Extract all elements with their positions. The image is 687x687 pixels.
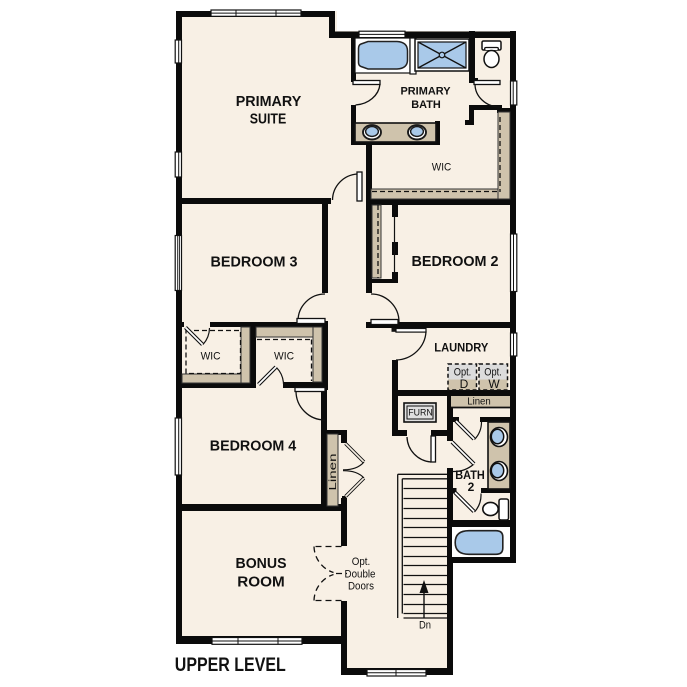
svg-text:BATH: BATH xyxy=(411,99,441,111)
svg-text:ROOM: ROOM xyxy=(237,575,285,591)
svg-text:BONUS: BONUS xyxy=(236,556,287,572)
svg-text:LAUNDRY: LAUNDRY xyxy=(434,341,488,355)
svg-text:D: D xyxy=(460,377,469,391)
svg-text:2: 2 xyxy=(468,480,475,494)
svg-text:WIC: WIC xyxy=(274,351,294,363)
svg-text:FURN: FURN xyxy=(408,408,433,419)
svg-text:Doors: Doors xyxy=(348,581,374,593)
svg-text:BEDROOM 4: BEDROOM 4 xyxy=(210,439,297,455)
svg-text:Linen: Linen xyxy=(467,396,491,408)
svg-text:PRIMARY: PRIMARY xyxy=(401,86,452,98)
svg-text:WIC: WIC xyxy=(432,162,452,174)
svg-text:Opt.: Opt. xyxy=(352,556,371,568)
svg-text:Dn: Dn xyxy=(419,620,431,632)
svg-text:W: W xyxy=(488,377,500,391)
svg-text:BEDROOM 2: BEDROOM 2 xyxy=(412,254,499,270)
svg-text:UPPER LEVEL: UPPER LEVEL xyxy=(175,655,286,676)
svg-text:SUITE: SUITE xyxy=(250,112,287,128)
svg-text:BEDROOM 3: BEDROOM 3 xyxy=(211,255,298,271)
svg-text:Double: Double xyxy=(345,569,376,581)
svg-text:PRIMARY: PRIMARY xyxy=(236,94,302,110)
svg-text:WIC: WIC xyxy=(201,351,221,363)
svg-text:Linen: Linen xyxy=(327,453,339,490)
